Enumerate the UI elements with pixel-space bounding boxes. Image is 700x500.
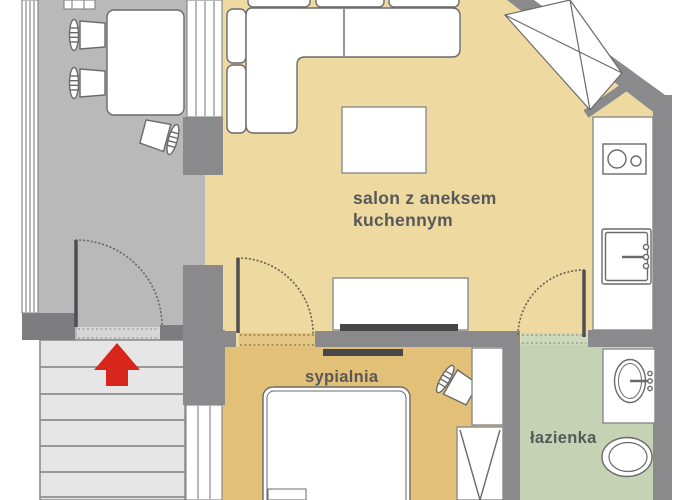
kitchen-sink	[602, 229, 651, 284]
bathroom-label: łazienka	[530, 429, 597, 447]
tv-screen-bar	[340, 324, 458, 331]
living-room-label-line1: salon z aneksem	[353, 188, 497, 208]
cooktop	[603, 144, 646, 174]
bed	[263, 387, 410, 500]
toilet	[602, 438, 652, 477]
wall-hall-living-upper	[183, 117, 223, 175]
washbasin-counter	[603, 349, 655, 423]
wall-right	[653, 95, 672, 500]
wall-entrance-right	[160, 325, 185, 340]
floor-plan: salon z aneksem kuchennym sypialnia łazi…	[0, 0, 700, 500]
wall-bathroom-top-right	[588, 330, 655, 347]
kitchen-counter	[593, 117, 653, 330]
wall-bedroom-left	[183, 330, 225, 405]
window-hall-living	[187, 0, 222, 117]
window-left	[22, 0, 38, 313]
living-room-label-line2: kuchennym	[353, 210, 453, 230]
bedroom-tv-bar	[323, 349, 403, 356]
bedroom-label: sypialnia	[305, 368, 379, 386]
staircase	[40, 340, 185, 500]
wall-hall-living-lower	[183, 265, 223, 335]
wall-entrance-left	[22, 313, 75, 340]
dining-chair	[70, 20, 106, 51]
wardrobe	[457, 427, 503, 500]
tv-lowboard	[333, 278, 468, 330]
wall-living-bedroom	[315, 331, 520, 347]
wall-bedroom-door-jamb	[223, 331, 236, 347]
dining-table	[107, 10, 184, 115]
coffee-table	[342, 107, 426, 173]
window-top-left-stub	[64, 0, 95, 9]
bedroom-desk	[472, 348, 503, 425]
stair-railing	[186, 405, 222, 500]
dining-chair	[70, 68, 106, 99]
wall-bedroom-bathroom	[503, 331, 520, 500]
